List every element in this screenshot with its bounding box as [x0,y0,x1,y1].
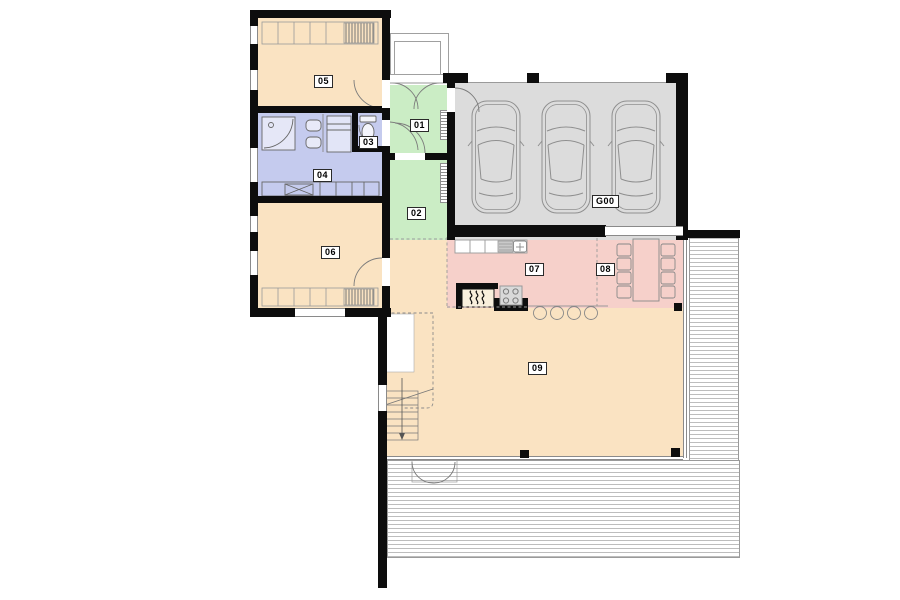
wall-segment [378,317,387,588]
room-label-03: 03 [359,136,378,149]
room-label-01: 01 [410,119,429,132]
room-label-04: 04 [313,169,332,182]
wall-segment [250,196,390,203]
window [250,148,258,182]
window [250,26,258,44]
room-fill-bedroom-06 [258,203,382,308]
door-opening [382,80,390,108]
room-fill-bathroom-04 [258,113,382,198]
wall-segment [250,106,390,113]
window [250,70,258,90]
room-label-G00: G00 [592,195,619,208]
terrace-decking [387,460,740,558]
door-opening [382,258,390,286]
terrace-decking [689,234,739,462]
window [605,226,683,236]
wall-pillar [666,73,688,83]
wall-pillar [527,73,539,83]
door-opening [395,153,425,160]
glass-wall [683,240,687,458]
room-label-05: 05 [314,75,333,88]
room-label-02: 02 [407,207,426,220]
window [250,251,258,275]
wall-pillar [443,73,468,83]
window [295,308,345,317]
room-label-08: 08 [596,263,615,276]
room-label-09: 09 [528,362,547,375]
entry-canopy-outline [394,41,441,75]
room-fill-bedroom-05 [258,18,382,106]
column-marker [671,448,680,457]
door-opening [382,120,390,146]
window [378,385,387,411]
room-label-06: 06 [321,246,340,259]
floor-plan: 01 02 03 04 05 06 07 08 09 G00 [0,0,900,600]
column-marker [520,450,529,458]
wall-segment [250,10,391,18]
wall-segment [683,230,740,238]
wall-segment [676,73,688,240]
column-marker [674,303,682,311]
room-fill-kitchen-dining [447,237,683,308]
glass-wall [387,456,683,460]
door-opening [447,88,455,112]
room-fill-garage [455,83,676,240]
window [250,216,258,232]
wall-segment [455,225,606,237]
room-label-07: 07 [525,263,544,276]
